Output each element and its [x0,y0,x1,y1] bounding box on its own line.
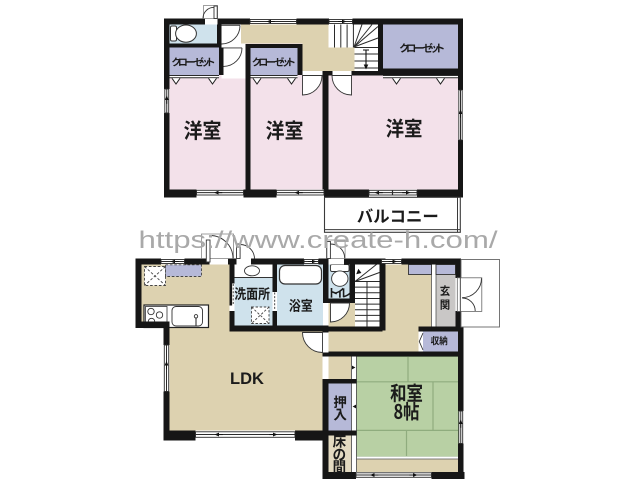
svg-text:LDK: LDK [230,370,264,388]
svg-text:https://www.create-h.com/: https://www.create-h.com/ [139,227,498,254]
